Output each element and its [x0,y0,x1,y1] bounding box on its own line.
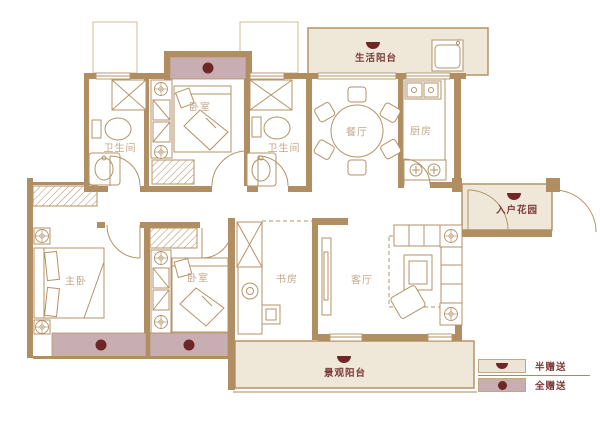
bedroom-2-label: 卧室 [187,270,209,285]
half-gift-icon [496,363,508,369]
entry-garden-label: 入户花园 [496,202,538,216]
study-furniture [237,221,312,334]
kitchen-label: 厨房 [410,123,432,138]
study-label: 书房 [276,271,298,286]
floor-plan: 卫生间 卧室 卫生间 餐厅 厨房 主卧 卧室 书房 客厅 生活阳台 入户花园 景… [0,0,600,429]
living-room-furniture [322,225,462,325]
living-room-label: 客厅 [351,272,373,287]
life-balcony-label: 生活阳台 [355,50,397,64]
legend-row-half-gift: 半赠送 [478,357,590,376]
legend: 半赠送 全赠送 [478,357,590,394]
legend-row-full-gift: 全赠送 [478,376,590,394]
full-gift-icon [498,381,507,390]
master-bedroom-furniture [33,186,104,334]
bathroom-1-fixtures [89,80,146,185]
full-gift-swatch [478,378,526,392]
half-gift-swatch [478,359,526,373]
bedroom-1-furniture [151,80,231,184]
bathroom-2-label: 卫生间 [268,140,301,155]
dining-room-label: 餐厅 [346,124,368,139]
view-balcony-label: 景观阳台 [324,365,366,379]
washing-machine [432,40,463,71]
bedroom-1-label: 卧室 [189,99,211,114]
half-gift-label: 半赠送 [535,359,567,373]
full-gift-label: 全赠送 [535,378,567,392]
bathroom-1-label: 卫生间 [104,140,137,155]
master-bedroom-label: 主卧 [65,273,87,288]
bathroom-2-fixtures [246,80,292,186]
